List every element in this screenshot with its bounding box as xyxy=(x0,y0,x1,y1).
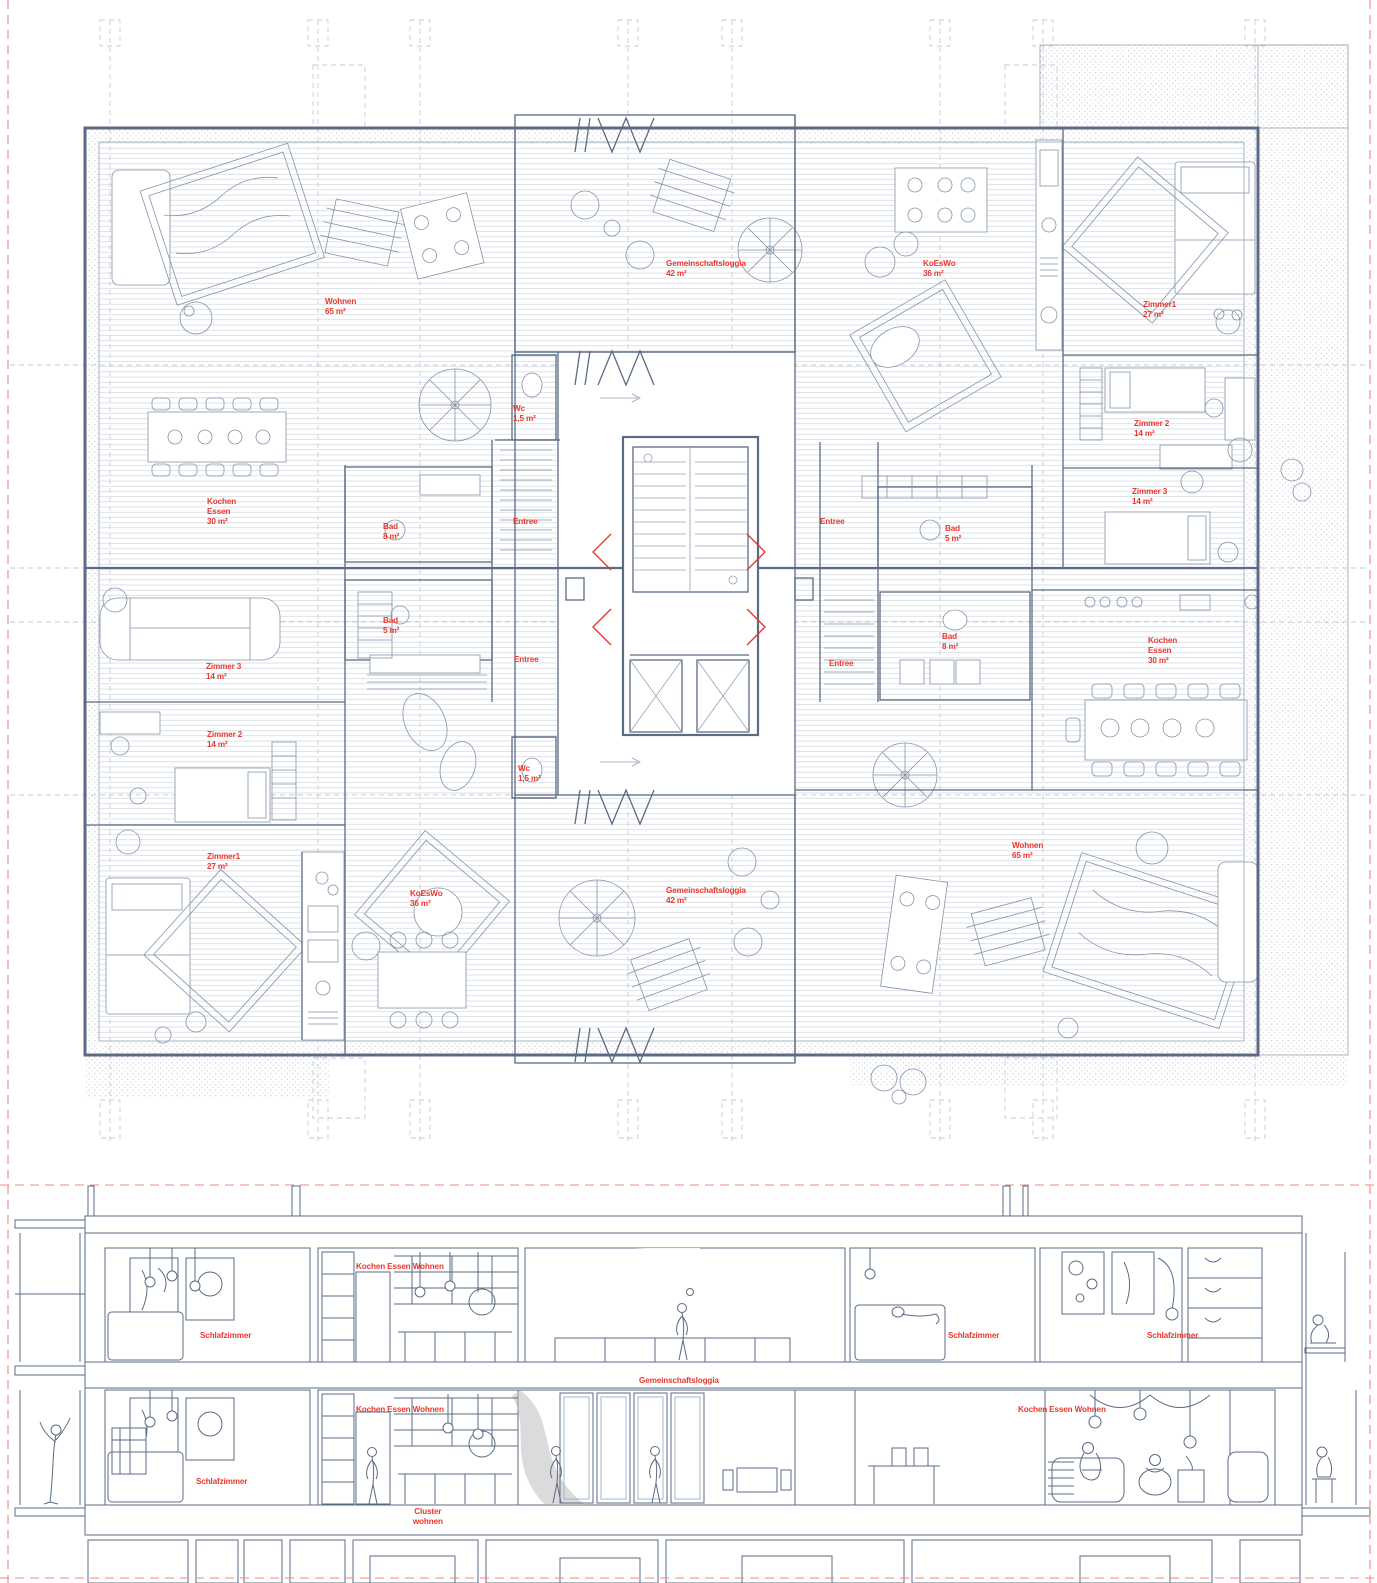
room-label-entree-right-upper: Entree xyxy=(820,516,845,526)
room-label-gemeinschaftsloggia-top: Gemeinschaftsloggia 42 m² xyxy=(666,258,746,278)
room-label-zimmer3-right: Zimmer 3 14 m² xyxy=(1132,486,1167,506)
room-label-zimmer2-left: Zimmer 2 14 m² xyxy=(207,729,242,749)
room-label-bad-8-right: Bad 8 m² xyxy=(942,631,958,651)
section-label-gemeinschaftsloggia: Gemeinschaftsloggia xyxy=(639,1375,719,1385)
linework xyxy=(0,0,1377,1583)
room-label-wohnen-bottom-right: Wohnen 65 m² xyxy=(1012,840,1043,860)
section-label-kochen-essen-wohnen-upper: Kochen Essen Wohnen xyxy=(356,1261,444,1271)
room-label-wohnen-top-left: Wohnen 65 m² xyxy=(325,296,356,316)
section-label-kochen-essen-wohnen-lower-right: Kochen Essen Wohnen xyxy=(1018,1404,1106,1414)
room-label-gemeinschaftsloggia-bottom: Gemeinschaftsloggia 42 m² xyxy=(666,885,746,905)
section-lower-floor xyxy=(40,1390,1336,1505)
room-label-wc-top: Wc 1,5 m² xyxy=(513,403,536,423)
room-label-zimmer1-bottom-left: Zimmer1 27 m² xyxy=(207,851,240,871)
room-label-zimmer1-top-right: Zimmer1 27 m² xyxy=(1143,299,1176,319)
section-label-schlafzimmer-upper-right-2: Schlafzimmer xyxy=(1147,1330,1198,1340)
room-label-koeswo-top-right: KoEsWo 36 m² xyxy=(923,258,956,278)
section-upper-floor xyxy=(105,1248,1345,1362)
room-label-zimmer2-right: Zimmer 2 14 m² xyxy=(1134,418,1169,438)
room-label-entree-left-lower: Entree xyxy=(514,654,539,664)
section-label-kochen-essen-wohnen-lower-left: Kochen Essen Wohnen xyxy=(356,1404,444,1414)
section-label-cluster-wohnen: Cluster wohnen xyxy=(400,1506,456,1526)
section-label-schlafzimmer-upper-left: Schlafzimmer xyxy=(200,1330,251,1340)
room-label-entree-right-lower: Entree xyxy=(829,658,854,668)
roof-slab xyxy=(85,1216,1302,1233)
hall-zone xyxy=(558,352,795,795)
room-label-kochen-essen-right: Kochen Essen 30 m² xyxy=(1148,635,1177,665)
room-label-bad-8-left: Bad 8 m² xyxy=(383,521,399,541)
room-label-koeswo-bottom-left: KoEsWo 36 m² xyxy=(410,888,443,908)
ground-slab xyxy=(85,1505,1302,1535)
room-label-entree-left-upper: Entree xyxy=(513,516,538,526)
section-label-schlafzimmer-upper-right-1: Schlafzimmer xyxy=(948,1330,999,1340)
drawing-sheet: Wohnen 65 m² Gemeinschaftsloggia 42 m² K… xyxy=(0,0,1377,1583)
room-label-bad-5-left: Bad 5 m² xyxy=(383,615,399,635)
section-label-schlafzimmer-lower-left: Schlafzimmer xyxy=(196,1476,247,1486)
room-label-bad-5-right: Bad 5 m² xyxy=(945,523,961,543)
room-label-wc-bottom: Wc 1,5 m² xyxy=(518,763,541,783)
room-label-kochen-essen-left: Kochen Essen 30 m² xyxy=(207,496,236,526)
room-label-zimmer3-left: Zimmer 3 14 m² xyxy=(206,661,241,681)
basement-rooms xyxy=(88,1540,1300,1583)
floor-plan xyxy=(10,20,1367,1145)
